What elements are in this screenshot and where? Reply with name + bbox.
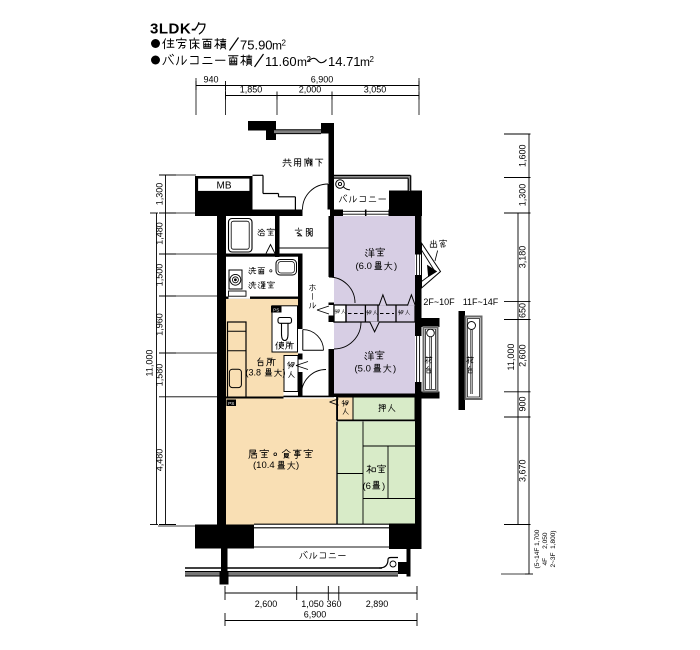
svg-text:PS: PS xyxy=(228,401,234,406)
svg-text:11,000: 11,000 xyxy=(506,344,516,371)
svg-text:1,050: 1,050 xyxy=(301,599,324,609)
svg-text:MB: MB xyxy=(217,181,232,192)
svg-text:PS: PS xyxy=(273,307,279,312)
svg-text:2,600: 2,600 xyxy=(255,599,278,609)
svg-text:3,050: 3,050 xyxy=(364,85,387,95)
svg-text:3,670: 3,670 xyxy=(518,459,528,482)
svg-text:650: 650 xyxy=(518,303,528,318)
svg-text:2F~10F: 2F~10F xyxy=(423,297,455,307)
svg-text:(6: (6 xyxy=(363,481,371,492)
svg-text:2~3F 1,800): 2~3F 1,800) xyxy=(550,530,557,567)
svg-text:2,000: 2,000 xyxy=(299,85,322,95)
svg-text:6,900: 6,900 xyxy=(304,610,327,620)
svg-text:11.60: 11.60 xyxy=(265,54,297,69)
svg-text:m: m xyxy=(297,55,307,69)
svg-text:1,480: 1,480 xyxy=(155,222,165,245)
svg-text:1,600: 1,600 xyxy=(518,144,528,167)
svg-text:14.71: 14.71 xyxy=(328,54,361,69)
svg-text:3,180: 3,180 xyxy=(518,246,528,269)
svg-text:m: m xyxy=(272,39,282,53)
svg-text:2: 2 xyxy=(282,39,287,48)
svg-text:(5~14F 1,700: (5~14F 1,700 xyxy=(534,529,541,568)
svg-text:1,300: 1,300 xyxy=(155,183,165,206)
svg-text:): ) xyxy=(393,364,396,375)
svg-text:6,900: 6,900 xyxy=(311,75,334,85)
svg-text:(6.0: (6.0 xyxy=(356,261,372,272)
svg-text:1,580: 1,580 xyxy=(155,364,165,387)
svg-text:): ) xyxy=(382,481,385,492)
svg-text:2: 2 xyxy=(370,55,375,64)
svg-text:4F 2,050: 4F 2,050 xyxy=(542,532,549,565)
svg-text:): ) xyxy=(394,261,397,272)
svg-text:75.90: 75.90 xyxy=(240,38,273,53)
svg-text:2,890: 2,890 xyxy=(366,599,389,609)
svg-text:940: 940 xyxy=(203,75,218,85)
svg-text:(10.4: (10.4 xyxy=(253,460,275,471)
svg-text:1,500: 1,500 xyxy=(155,264,165,287)
svg-text:): ) xyxy=(283,368,286,378)
svg-text:2,600: 2,600 xyxy=(518,344,528,367)
svg-text:900: 900 xyxy=(518,396,528,411)
svg-text:(5.0: (5.0 xyxy=(355,364,371,375)
svg-text:(3.8: (3.8 xyxy=(246,368,262,378)
svg-text:m: m xyxy=(360,55,370,69)
svg-text:1,960: 1,960 xyxy=(155,313,165,336)
svg-text:1,850: 1,850 xyxy=(240,85,263,95)
svg-text:11,000: 11,000 xyxy=(145,350,155,377)
svg-text:1,300: 1,300 xyxy=(518,184,528,207)
svg-text:3LDK-: 3LDK- xyxy=(150,21,197,38)
svg-text:360: 360 xyxy=(326,599,341,609)
svg-text:11F~14F: 11F~14F xyxy=(463,297,499,307)
svg-text:): ) xyxy=(296,460,299,471)
svg-text:4,480: 4,480 xyxy=(155,449,165,472)
